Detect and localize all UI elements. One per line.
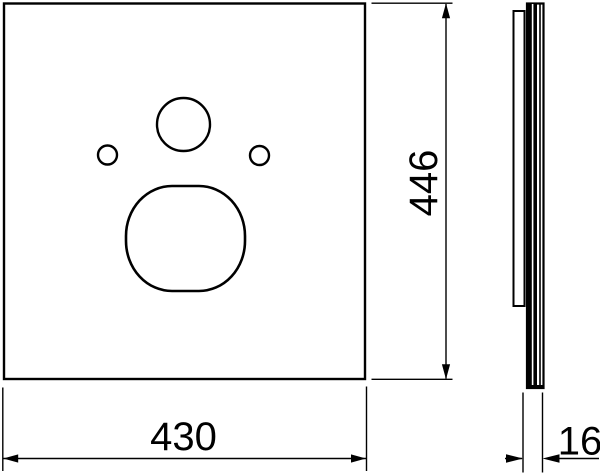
panel-outline [4,4,365,380]
thickness-arrow-right-pointing-icon [506,454,523,463]
height-dimension-label: 446 [402,150,446,217]
height-arrow-down-icon [442,364,450,379]
thickness-dimension-label: 16 [558,420,600,464]
width-dimension-label: 430 [150,415,217,459]
drawing-canvas: 446 430 16 [0,0,600,475]
height-dimension: 446 [372,3,453,379]
panel-dimension-drawing: 446 430 16 [0,0,600,475]
width-arrow-right-icon [351,454,366,462]
profile-bottom-cap [527,385,545,389]
glass-pane-gap [532,4,534,387]
mounting-plate-profile [514,11,525,306]
height-arrow-up-icon [442,3,450,18]
front-view [4,4,365,380]
side-view [514,3,545,389]
width-dimension: 430 [3,387,367,472]
thickness-dimension: 16 [505,393,600,473]
width-arrow-left-icon [3,454,18,462]
